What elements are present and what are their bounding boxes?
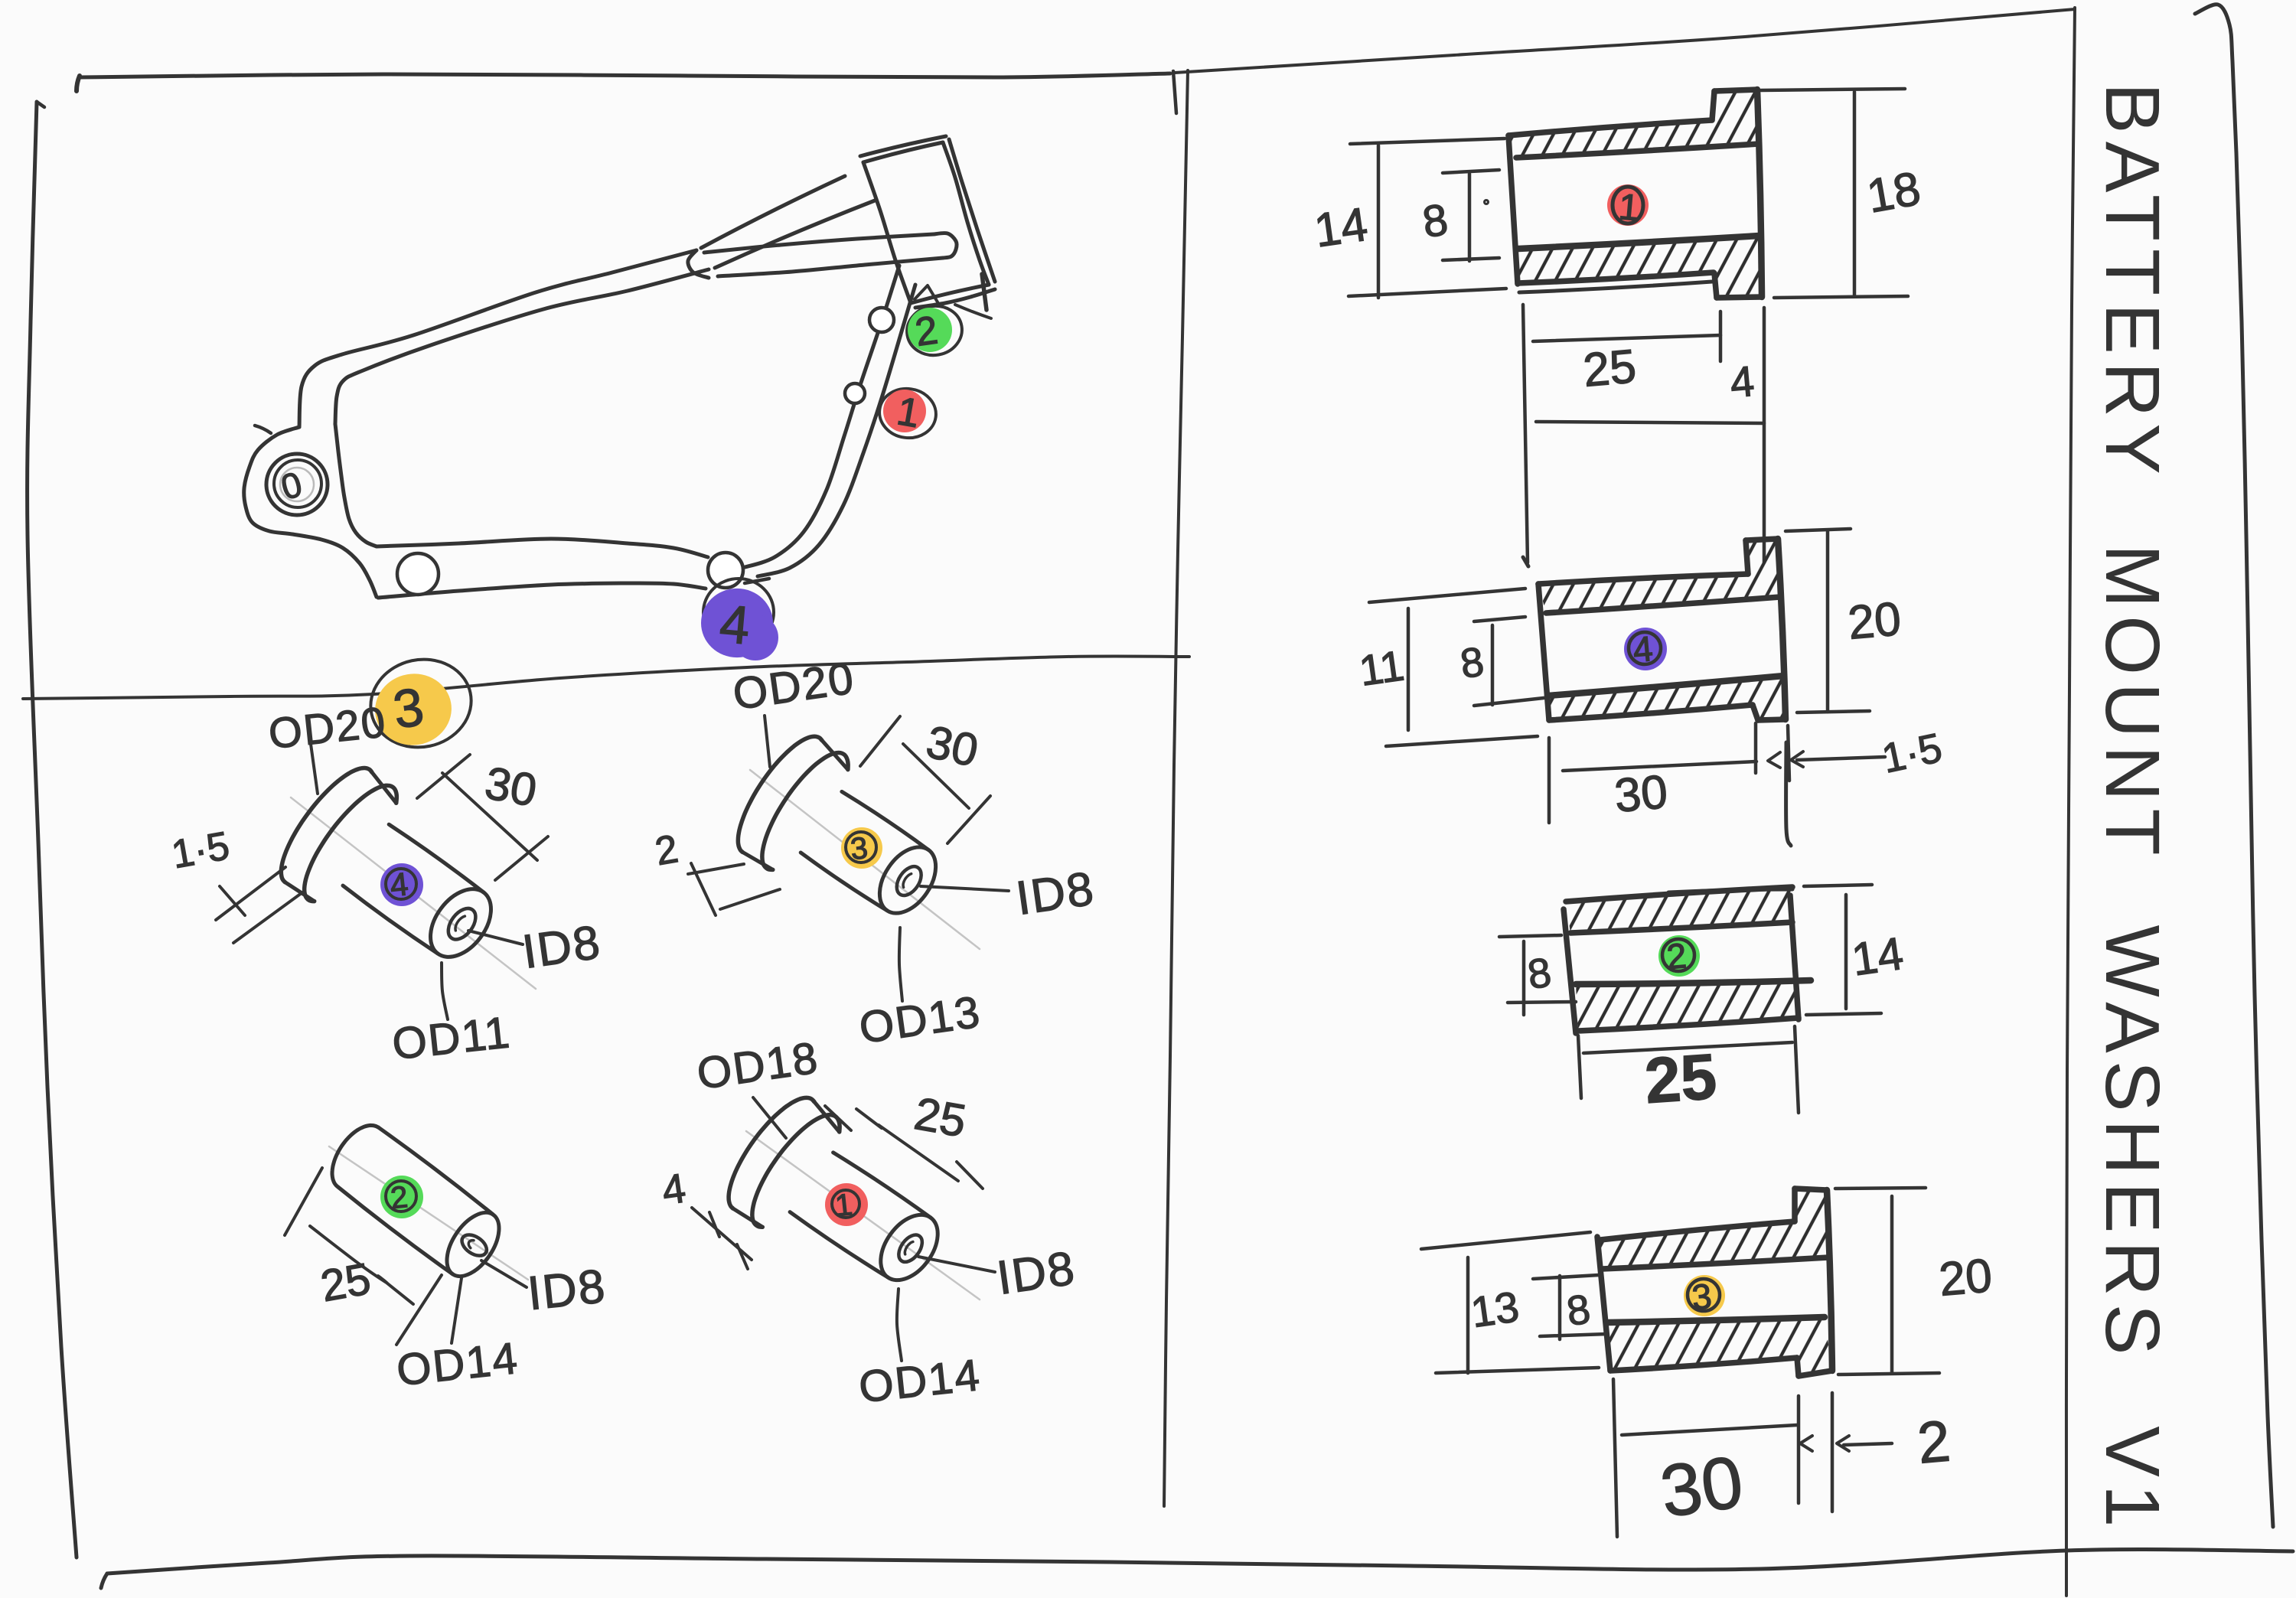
svg-text:ID8: ID8 [525,1260,608,1320]
svg-text:3: 3 [849,831,869,866]
svg-text:2: 2 [1665,935,1688,977]
svg-text:BATTERY MOUNT WASHERS V1: BATTERY MOUNT WASHERS V1 [2089,83,2175,1535]
svg-text:1: 1 [833,1188,854,1223]
svg-text:2: 2 [389,1180,409,1215]
svg-text:25: 25 [1642,1040,1719,1117]
svg-text:13: 13 [1468,1282,1521,1336]
svg-text:14: 14 [1311,198,1371,258]
svg-text:4: 4 [717,594,752,656]
svg-text:4: 4 [388,866,409,903]
svg-text:ID8: ID8 [520,915,605,979]
svg-text:25: 25 [317,1254,374,1311]
svg-text:18: 18 [1863,162,1924,223]
svg-text:4: 4 [1632,628,1655,670]
svg-text:3: 3 [1691,1276,1714,1317]
svg-text:25: 25 [911,1088,970,1147]
svg-text:30: 30 [1655,1440,1748,1533]
svg-text:25: 25 [1581,340,1639,397]
svg-text:30: 30 [1613,765,1670,823]
svg-text:20: 20 [1846,592,1903,650]
svg-text:ID8: ID8 [1013,862,1098,925]
svg-text:2: 2 [1915,1408,1953,1476]
svg-text:30: 30 [922,716,983,776]
svg-text:ID8: ID8 [994,1241,1079,1305]
svg-text:11: 11 [1356,641,1407,694]
svg-text:30: 30 [481,757,540,817]
svg-text:14: 14 [1848,928,1906,986]
svg-text:20: 20 [1937,1249,1994,1306]
svg-text:4: 4 [1728,357,1756,406]
svg-text:1: 1 [1617,187,1641,229]
